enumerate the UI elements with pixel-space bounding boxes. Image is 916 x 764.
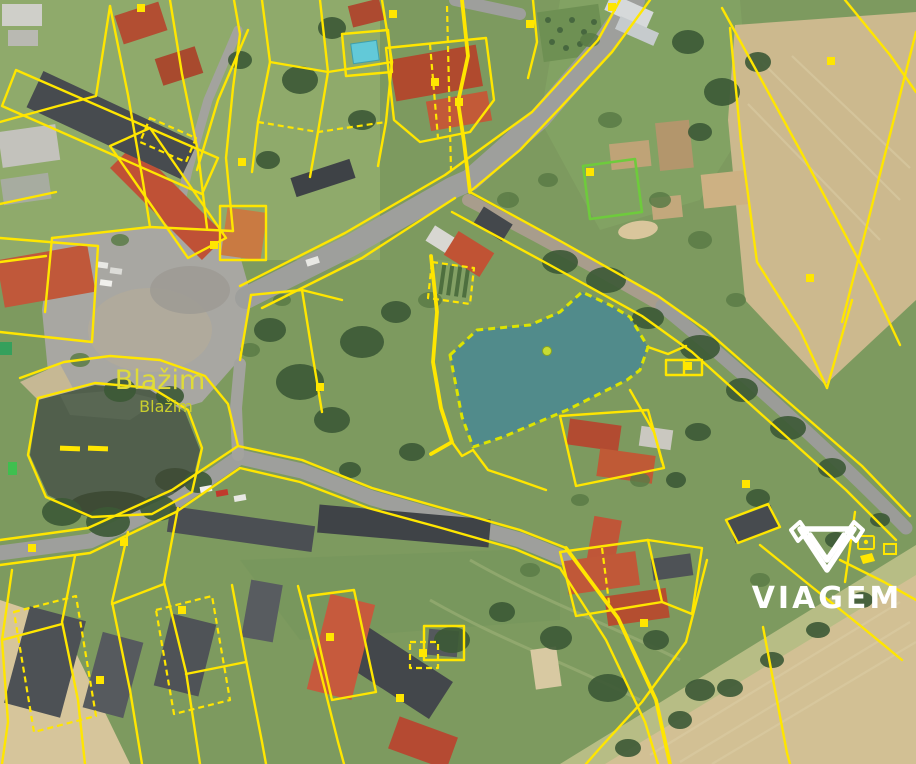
parcel-marker — [389, 10, 397, 18]
viagem-logo-text: VIAGEM — [752, 581, 903, 616]
parcel-marker — [178, 606, 186, 614]
parcel-marker — [684, 362, 692, 370]
parcel-marker — [640, 619, 648, 627]
map-canvas[interactable]: Blažim Blažim VIAGEM — [0, 0, 916, 764]
parcel-marker — [326, 633, 334, 641]
parcel-marker — [210, 241, 218, 249]
parcel-marker — [431, 78, 439, 86]
utility-marker-teal — [0, 342, 12, 355]
parcel-marker — [586, 168, 594, 176]
parcel-marker — [28, 544, 36, 552]
parcel-marker — [608, 3, 616, 11]
parcel-marker — [120, 538, 128, 546]
parcel-marker — [455, 98, 463, 106]
parcel-marker — [137, 4, 145, 12]
parcel-marker — [419, 649, 427, 657]
water-symbol — [60, 446, 80, 452]
parcel-marker — [827, 57, 835, 65]
utility-marker-green — [8, 462, 17, 475]
water-symbol — [88, 446, 108, 452]
parcel-marker — [316, 383, 324, 391]
parcel-marker — [238, 158, 246, 166]
swimming-pool — [351, 40, 380, 63]
highlighted-parcel-marker — [543, 347, 552, 356]
parcel-marker — [742, 480, 750, 488]
map-viewport[interactable]: Blažim Blažim VIAGEM — [0, 0, 916, 764]
place-label-small: Blažim — [139, 397, 193, 416]
parcel-marker — [526, 20, 534, 28]
parcel-marker — [96, 676, 104, 684]
place-label-large: Blažim — [115, 365, 206, 396]
parcel-marker — [396, 694, 404, 702]
parcel-marker — [806, 274, 814, 282]
